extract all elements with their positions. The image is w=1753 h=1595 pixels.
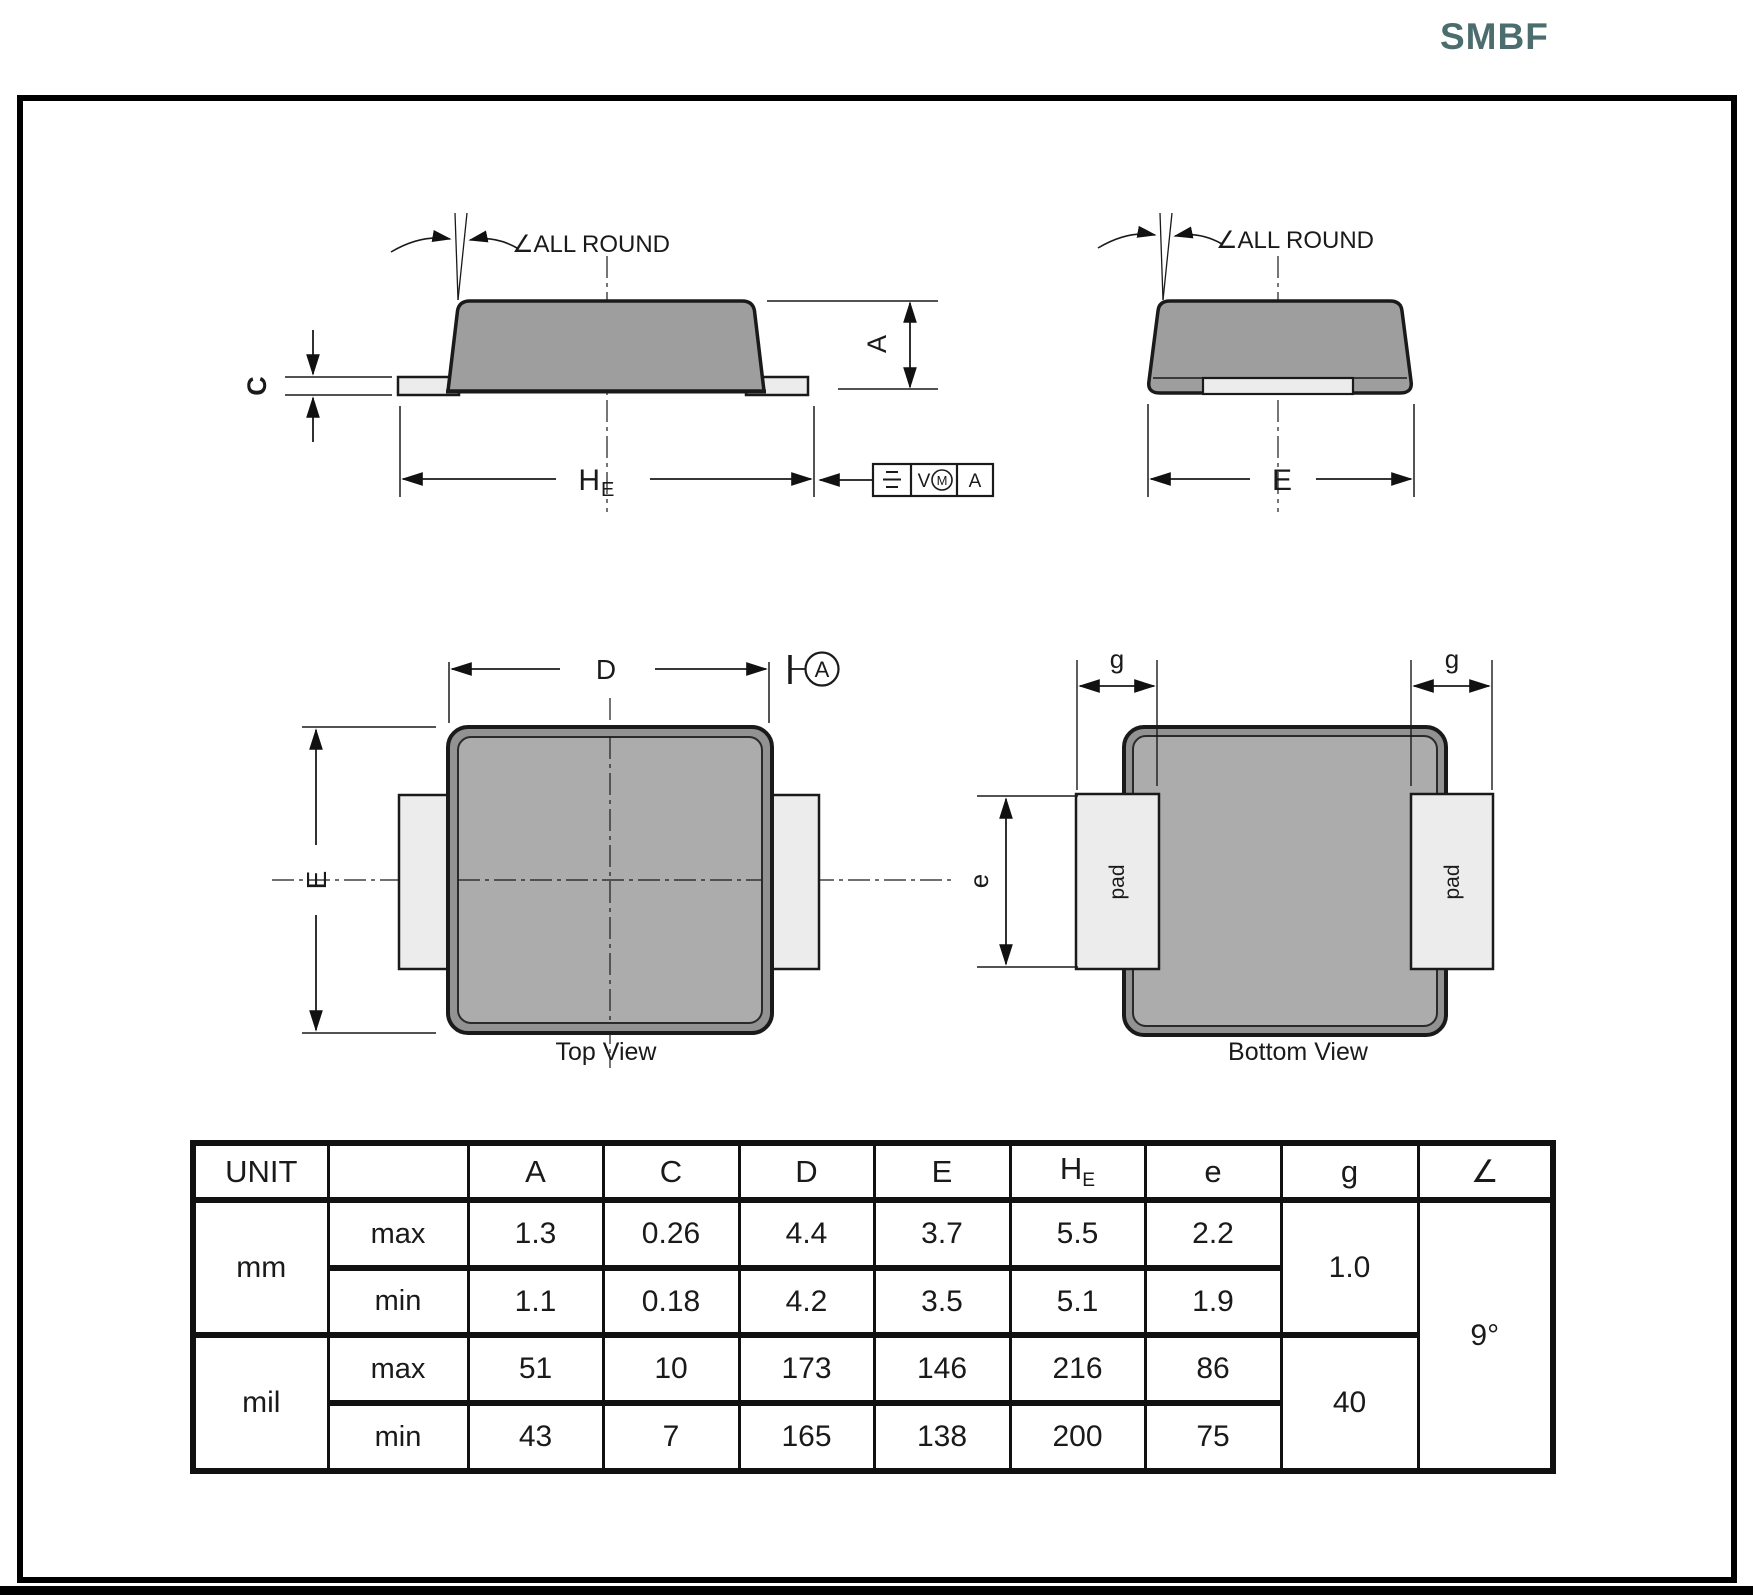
top-dim-e-label: E [301,871,332,890]
table-cell: 86 [1145,1335,1281,1403]
table-cell: 0.18 [603,1268,739,1335]
top-lead-left [399,795,450,969]
drawing-canvas: ∠ALL ROUND C A [0,0,1753,1125]
table-cell: 10 [603,1335,739,1403]
bottom-body-inner [1133,736,1437,1026]
table-cell: 4.2 [739,1268,874,1335]
table-cell: 0.26 [603,1200,739,1268]
top-view: D A E Top View [272,653,952,1069]
table-cell: 200 [1010,1403,1145,1471]
side-dim-e: E [1148,404,1414,497]
feature-control-frame: V M A [820,464,993,496]
bottom-view: pad pad g g e Bott [964,644,1493,1066]
table-header-a: A [468,1143,603,1200]
bottom-pad-left-label: pad [1106,864,1129,899]
table-cell: 5.1 [1010,1268,1145,1335]
table-header-c: C [603,1143,739,1200]
table-header-unit: UNIT [193,1143,328,1200]
front-angle-callout: ∠ALL ROUND [391,213,670,300]
table-cell: 5.5 [1010,1200,1145,1268]
table-cell: 43 [468,1403,603,1471]
table-cell: 3.5 [874,1268,1010,1335]
table-unit-mm: mm [193,1200,328,1335]
table-header-g: g [1281,1143,1418,1200]
table-cell-angle: 9° [1418,1200,1553,1471]
bottom-view-label: Bottom View [1228,1038,1369,1066]
side-angle-note: ∠ALL ROUND [1216,227,1374,254]
top-view-label: Top View [556,1038,658,1066]
datasheet-page: SMBF ∠ALL ROUND [0,0,1753,1595]
table-cell: 1.9 [1145,1268,1281,1335]
front-dim-c: C [242,330,392,442]
table-mil-min-label: min [328,1403,468,1471]
table-cell: 2.2 [1145,1200,1281,1268]
table-cell: 4.4 [739,1200,874,1268]
dimension-table: UNIT A C D E HE e g ∠ mm max 1.3 0.26 4.… [190,1140,1556,1474]
fcf-datum-a: A [969,471,982,492]
bottom-dim-g-right-label: g [1445,644,1459,674]
table-header-e: E [874,1143,1010,1200]
top-dim-d: D A [449,653,839,724]
bottom-dim-g-left-label: g [1110,644,1124,674]
table-cell: 146 [874,1335,1010,1403]
top-dim-d-label: D [596,654,616,685]
table-cell-g-mm: 1.0 [1281,1200,1418,1335]
front-dim-he-sub: E [601,479,614,501]
top-datum-a-label: A [815,657,830,682]
table-cell: 3.7 [874,1200,1010,1268]
table-cell: 7 [603,1403,739,1471]
front-dim-he-label: H [578,464,600,497]
table-mil-max-label: max [328,1335,468,1403]
front-view: ∠ALL ROUND C A [242,213,993,512]
table-cell: 51 [468,1335,603,1403]
side-dim-e-label: E [1272,464,1292,497]
table-mm-min-label: min [328,1268,468,1335]
fcf-modifier-m: M [937,473,948,488]
table-cell: 1.1 [468,1268,603,1335]
table-cell: 216 [1010,1335,1145,1403]
table-header-he: HE [1010,1143,1145,1200]
top-lead-right [770,795,819,969]
table-unit-mil: mil [193,1335,328,1471]
page-bottom-rule [0,1586,1753,1595]
table-cell-g-mil: 40 [1281,1335,1418,1471]
side-view: ∠ALL ROUND E [1098,213,1414,512]
side-pad-strip [1203,378,1353,394]
front-dim-a-label: A [862,335,892,353]
table-cell: 1.3 [468,1200,603,1268]
front-dim-c-label: C [242,376,272,396]
table-cell: 165 [739,1403,874,1471]
front-body [448,301,764,391]
front-angle-note: ∠ALL ROUND [512,231,670,258]
table-header-blank [328,1143,468,1200]
table-header-angle: ∠ [1418,1143,1553,1200]
bottom-dim-e-label: e [964,874,994,888]
table-header-d: D [739,1143,874,1200]
bottom-pad-right-label: pad [1441,864,1464,899]
table-mm-max-label: max [328,1200,468,1268]
fcf-tolerance-v: V [918,471,931,492]
table-cell: 75 [1145,1403,1281,1471]
bottom-dim-e: e [964,796,1078,967]
table-header-e-small: e [1145,1143,1281,1200]
table-cell: 138 [874,1403,1010,1471]
side-angle-callout: ∠ALL ROUND [1098,213,1374,300]
table-cell: 173 [739,1335,874,1403]
